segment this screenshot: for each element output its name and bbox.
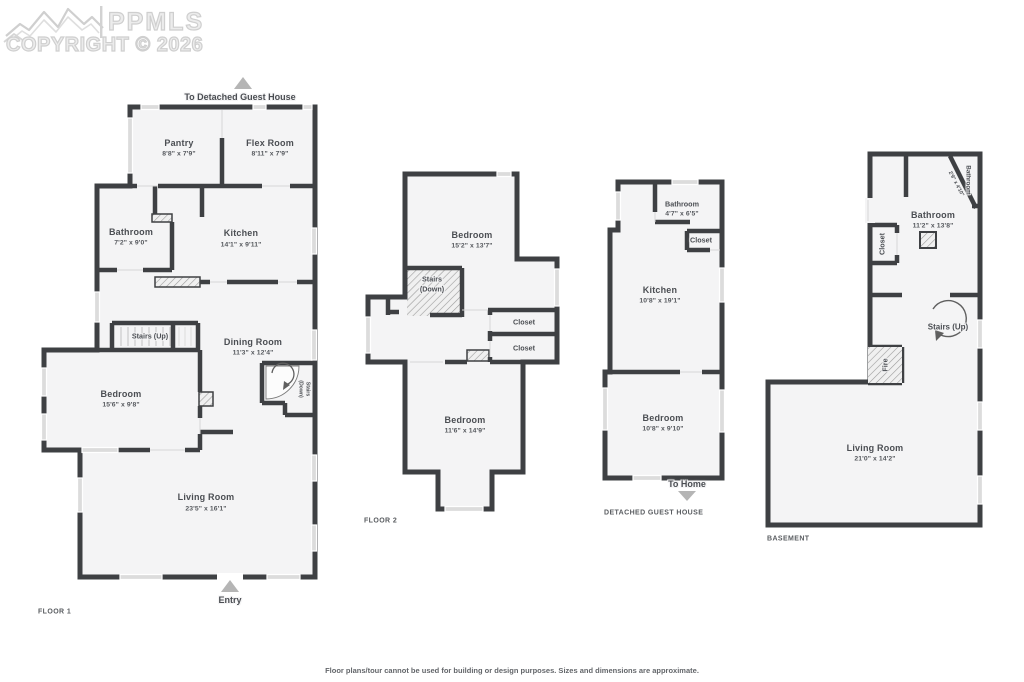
room-dims-kitchen-f1: 14'1" x 9'11": [221, 242, 262, 249]
room-label-bedroom1-f2: Bedroom: [452, 230, 493, 240]
room-label-stairs-f2-line2: (Down): [420, 285, 444, 294]
guest-house-plan: [603, 180, 725, 502]
pocket-door-hatch: [152, 214, 172, 222]
room-dims-pantry: 8'8" x 7'9": [162, 151, 195, 158]
stairs-down-line1: Stairs: [304, 380, 311, 398]
watermark-copyright: COPYRIGHT © 2026: [6, 34, 203, 57]
room-dims-bedroom2-f2: 11'6" x 14'9": [445, 428, 486, 435]
room-label-kitchen-gh: Kitchen: [643, 285, 677, 295]
to-home-label: To Home: [668, 479, 706, 489]
room-label-bathroom-f1: Bathroom: [109, 227, 153, 237]
room-label-living-room-b: Living Room: [847, 443, 904, 453]
room-label-bedroom2-f2: Bedroom: [445, 415, 486, 425]
stairs-down-line2: (Down): [298, 380, 305, 398]
floor2-room-fill: [368, 174, 557, 509]
floor2-tag: FLOOR 2: [364, 518, 397, 525]
room-label-kitchen-f1: Kitchen: [224, 228, 258, 238]
floorplan-drawing: [0, 0, 1024, 682]
chimney-hatch: [199, 392, 213, 406]
basement-tag: BASEMENT: [767, 536, 809, 543]
bathroom-fixture-hatch: [920, 232, 936, 248]
room-dims-bedroom-gh: 10'8" x 9'10": [642, 426, 683, 433]
to-guest-house-arrow-icon: [234, 77, 252, 89]
watermark-brand: PPMLS: [108, 8, 204, 37]
room-dims-living-room-b: 21'0" x 14'2": [854, 456, 895, 463]
room-label-closet-b: Closet: [878, 233, 887, 255]
room-label-bathroom-b: Bathroom: [911, 210, 955, 220]
step-hatch: [467, 350, 489, 361]
room-dims-bedroom-f1: 15'6" x 9'8": [102, 402, 139, 409]
room-label-closet2-f2: Closet: [513, 344, 535, 353]
to-guest-house-label: To Detached Guest House: [184, 92, 295, 102]
guest-house-room-fill: [605, 182, 722, 478]
room-label-stairs-up-b: Stairs (Up): [928, 323, 968, 332]
room-dims-bedroom1-f2: 15'2" x 13'7": [451, 243, 492, 250]
room-label-closet1-f2: Closet: [513, 318, 535, 327]
room-label-stairs-up-f1: Stairs (Up): [132, 332, 168, 341]
room-label-dining-room: Dining Room: [224, 337, 282, 347]
room-label-bathroom-small-b: Bathroom: [965, 165, 972, 194]
room-label-bedroom-gh: Bedroom: [643, 413, 684, 423]
room-label-stairs-f2-line1: Stairs: [422, 275, 442, 284]
room-dims-kitchen-gh: 10'8" x 19'1": [639, 298, 680, 305]
room-label-fire-b: Fire: [881, 358, 890, 371]
basement-windows: [978, 320, 983, 504]
basement-door-opening: [865, 198, 875, 223]
floor1-tag: FLOOR 1: [38, 609, 71, 616]
room-dims-dining-room: 11'3" x 12'4": [233, 350, 274, 357]
room-label-pantry: Pantry: [164, 138, 193, 148]
room-label-living-room-f1: Living Room: [178, 492, 235, 502]
disclaimer-text: Floor plans/tour cannot be used for buil…: [0, 666, 1024, 675]
room-dims-flex-room: 8'11" x 7'9": [252, 151, 289, 158]
half-wall-hatch: [155, 277, 200, 287]
entry-label: Entry: [218, 595, 241, 605]
floorplan-page: PPMLS COPYRIGHT © 2026 To Detached Guest…: [0, 0, 1024, 682]
room-label-bedroom-f1: Bedroom: [101, 389, 142, 399]
room-label-bathroom-gh: Bathroom: [665, 200, 699, 209]
guest-house-tag: DETACHED GUEST HOUSE: [604, 510, 703, 517]
room-dims-bathroom-f1: 7'2" x 9'0": [114, 240, 147, 247]
room-label-flex-room: Flex Room: [246, 138, 294, 148]
room-label-stairs-down-f1: Stairs (Down): [298, 380, 311, 398]
floor2-plan: [366, 172, 560, 512]
room-dims-living-room-f1: 23'5" x 16'1": [185, 506, 226, 513]
room-label-closet-gh: Closet: [690, 236, 712, 245]
to-home-arrow-icon: [678, 491, 696, 501]
room-dims-bathroom-b: 11'2" x 13'8": [913, 223, 954, 230]
room-dims-bathroom-gh: 4'7" x 6'5": [665, 211, 698, 218]
